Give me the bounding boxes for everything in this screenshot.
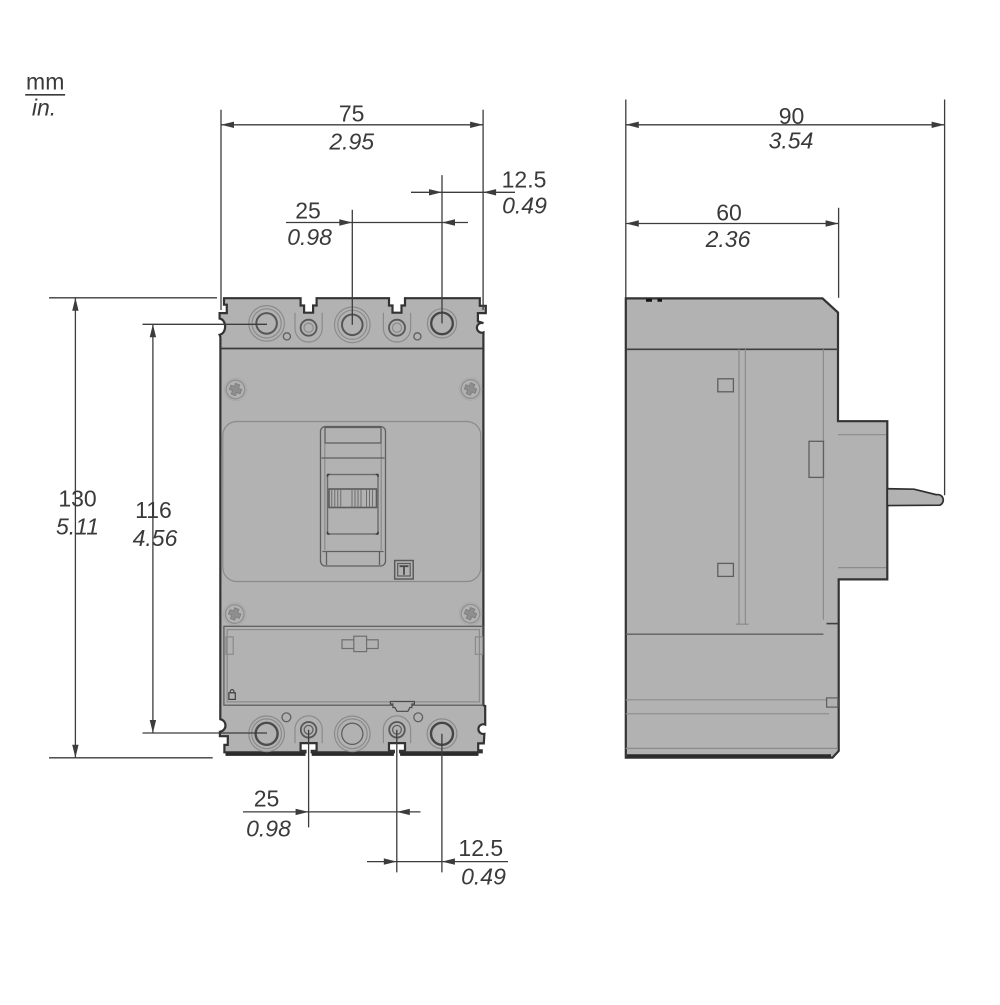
svg-text:3.54: 3.54 xyxy=(769,128,814,154)
svg-text:mm: mm xyxy=(26,69,64,95)
svg-text:0.98: 0.98 xyxy=(287,224,332,250)
svg-text:12.5: 12.5 xyxy=(458,835,503,861)
svg-text:75: 75 xyxy=(339,100,365,126)
svg-text:5.11: 5.11 xyxy=(56,514,99,540)
svg-text:0.49: 0.49 xyxy=(461,864,506,890)
svg-text:2.36: 2.36 xyxy=(705,226,751,252)
svg-text:25: 25 xyxy=(295,198,321,224)
svg-text:25: 25 xyxy=(254,786,280,812)
svg-text:0.49: 0.49 xyxy=(502,193,547,219)
svg-text:in.: in. xyxy=(32,95,56,121)
svg-text:130: 130 xyxy=(58,486,96,512)
svg-text:90: 90 xyxy=(779,103,805,129)
svg-text:116: 116 xyxy=(135,497,172,523)
svg-text:0.98: 0.98 xyxy=(246,816,291,842)
svg-text:2.95: 2.95 xyxy=(328,128,374,154)
svg-text:60: 60 xyxy=(716,200,742,226)
svg-text:12.5: 12.5 xyxy=(502,167,547,193)
svg-text:4.56: 4.56 xyxy=(133,525,178,551)
